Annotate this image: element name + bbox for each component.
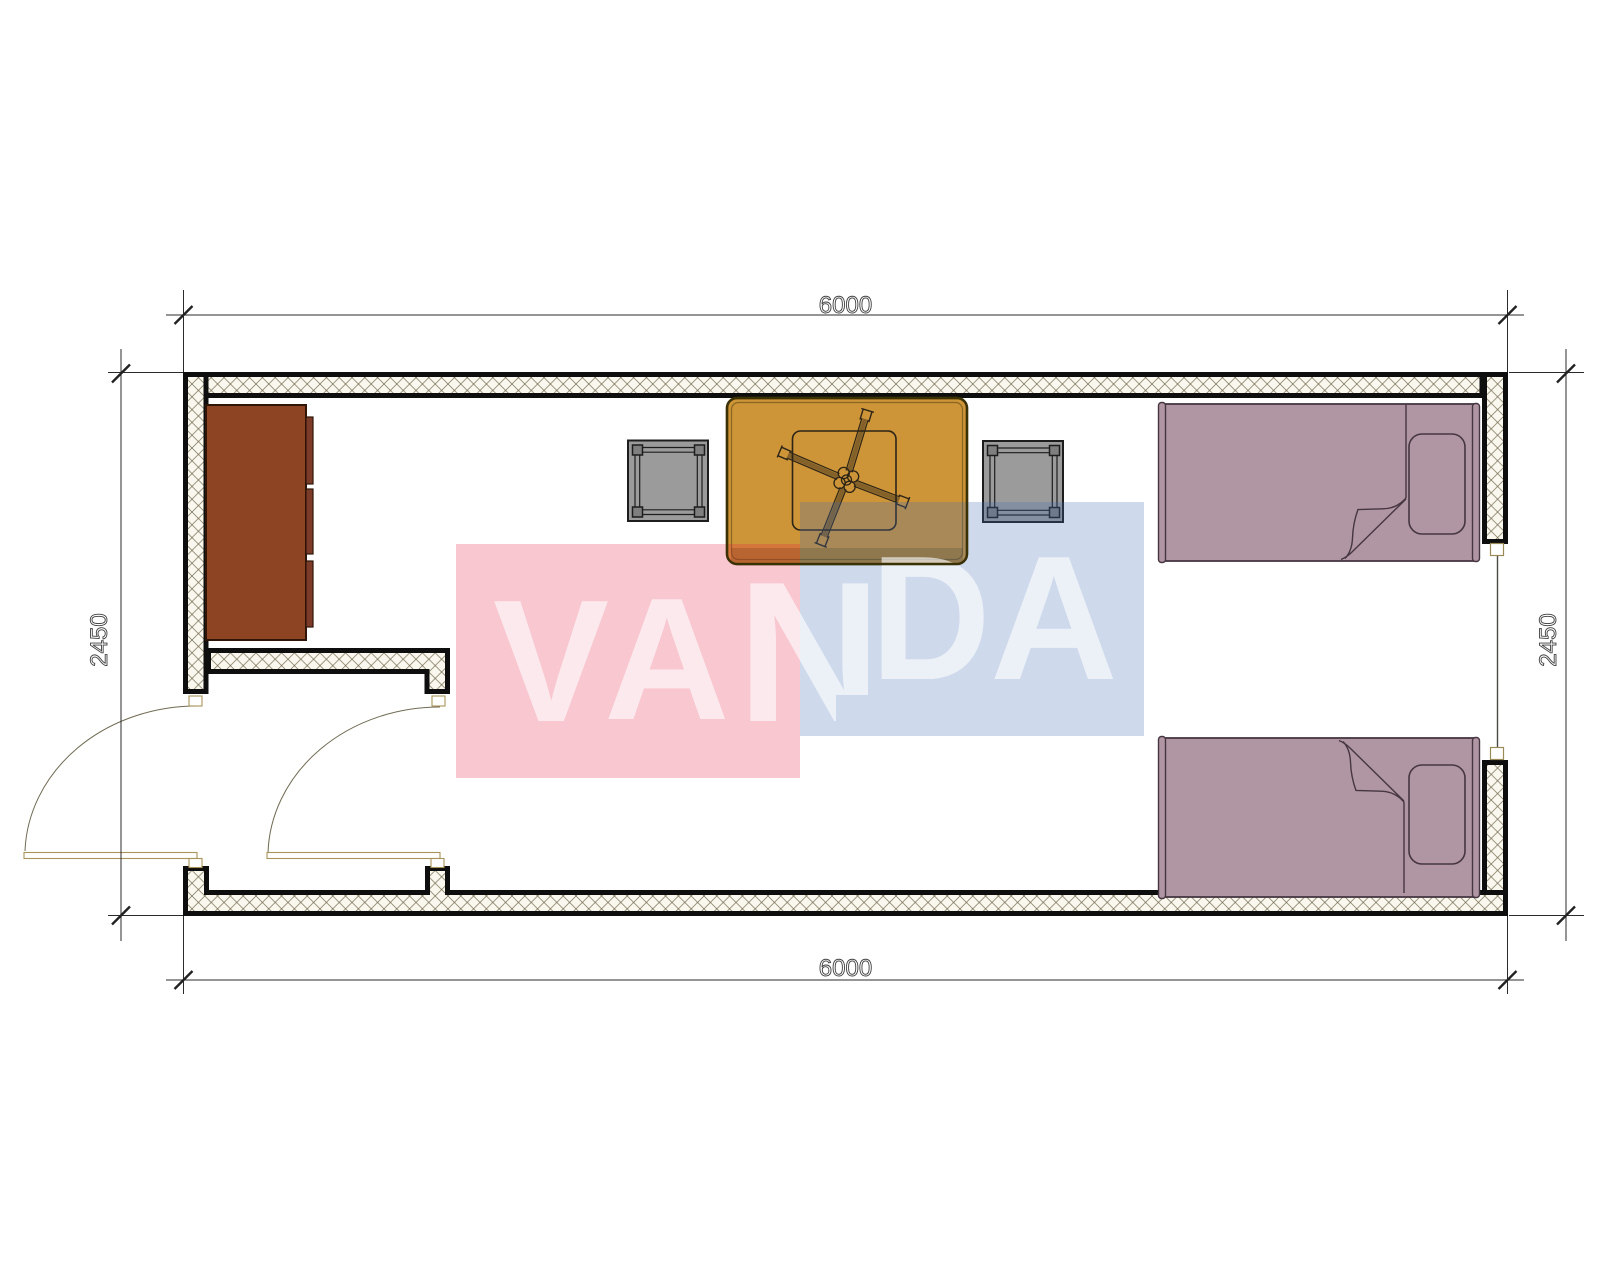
svg-text:A: A: [990, 519, 1118, 717]
svg-text:6000: 6000: [819, 292, 872, 319]
svg-text:D: D: [871, 520, 991, 717]
svg-text:2450: 2450: [86, 613, 113, 666]
svg-text:6000: 6000: [819, 955, 872, 982]
svg-text:2450: 2450: [1535, 613, 1562, 666]
svg-text:A: A: [604, 561, 730, 756]
svg-text:N: N: [737, 541, 881, 764]
svg-text:V: V: [493, 563, 609, 758]
